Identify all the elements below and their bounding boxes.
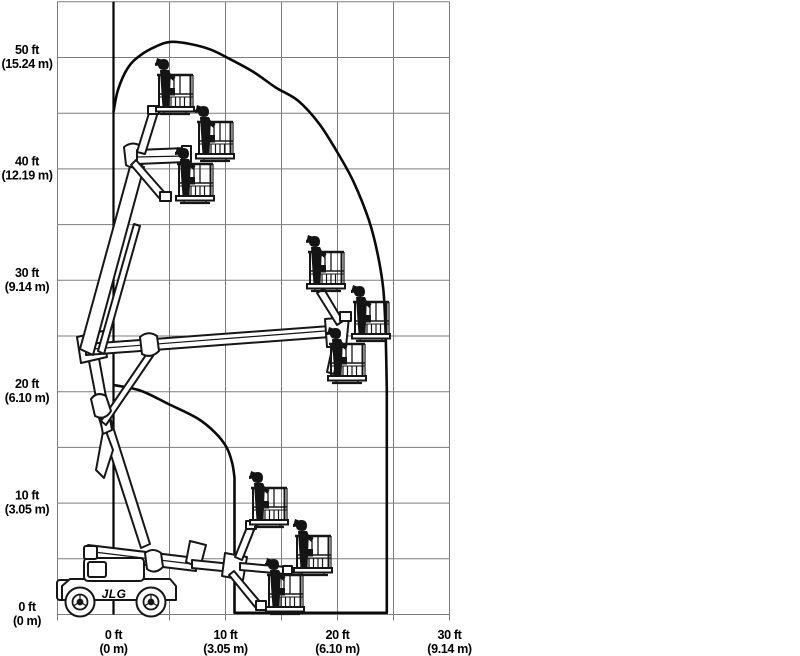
platform-basket-low-jib-level <box>293 519 332 575</box>
x-tick-label: 30 ft <box>438 628 463 642</box>
y-tick-sublabel: (9.14 m) <box>5 280 50 294</box>
x-tick-sublabel: (9.14 m) <box>427 642 472 656</box>
reach-diagram-page: JLG 0 <box>0 0 800 656</box>
boom-lift-riser-arms <box>88 352 153 548</box>
platform-basket-mid-jib-up <box>306 235 345 291</box>
x-axis-labels: 0 ft(0 m)10 ft(3.05 m)20 ft(6.10 m)30 ft… <box>99 628 471 656</box>
y-tick-label: 50 ft <box>15 43 40 57</box>
x-tick-sublabel: (0 m) <box>99 642 127 656</box>
x-tick-label: 10 ft <box>214 628 239 642</box>
y-tick-label: 30 ft <box>15 266 40 280</box>
wheel-rear <box>137 588 166 617</box>
platform-basket-low-jib-up <box>249 471 288 527</box>
y-tick-sublabel: (0 m) <box>13 614 41 628</box>
x-tick-label: 20 ft <box>326 628 351 642</box>
y-tick-label: 40 ft <box>15 154 40 168</box>
jlg-logo: JLG <box>102 587 127 601</box>
x-tick-sublabel: (6.10 m) <box>315 642 360 656</box>
y-tick-label: 20 ft <box>15 377 40 391</box>
boom-lift-mid-boom <box>86 289 351 374</box>
x-tick-label: 0 ft <box>105 628 123 642</box>
boom-lift-raised-boom <box>80 106 191 355</box>
y-tick-sublabel: (12.19 m) <box>2 168 53 182</box>
y-tick-sublabel: (15.24 m) <box>2 57 53 71</box>
x-tick-sublabel: (3.05 m) <box>203 642 248 656</box>
y-tick-label: 0 ft <box>18 600 36 614</box>
wheel-front <box>66 588 95 617</box>
y-tick-sublabel: (3.05 m) <box>5 503 50 517</box>
platform-basket-raised-jib-up <box>155 58 194 114</box>
y-axis-labels: 0 ft(0 m)10 ft(3.05 m)20 ft(6.10 m)30 ft… <box>2 43 53 628</box>
boom-lift-reach-chart: JLG 0 <box>0 0 800 656</box>
y-tick-label: 10 ft <box>15 489 40 503</box>
y-tick-sublabel: (6.10 m) <box>5 391 50 405</box>
